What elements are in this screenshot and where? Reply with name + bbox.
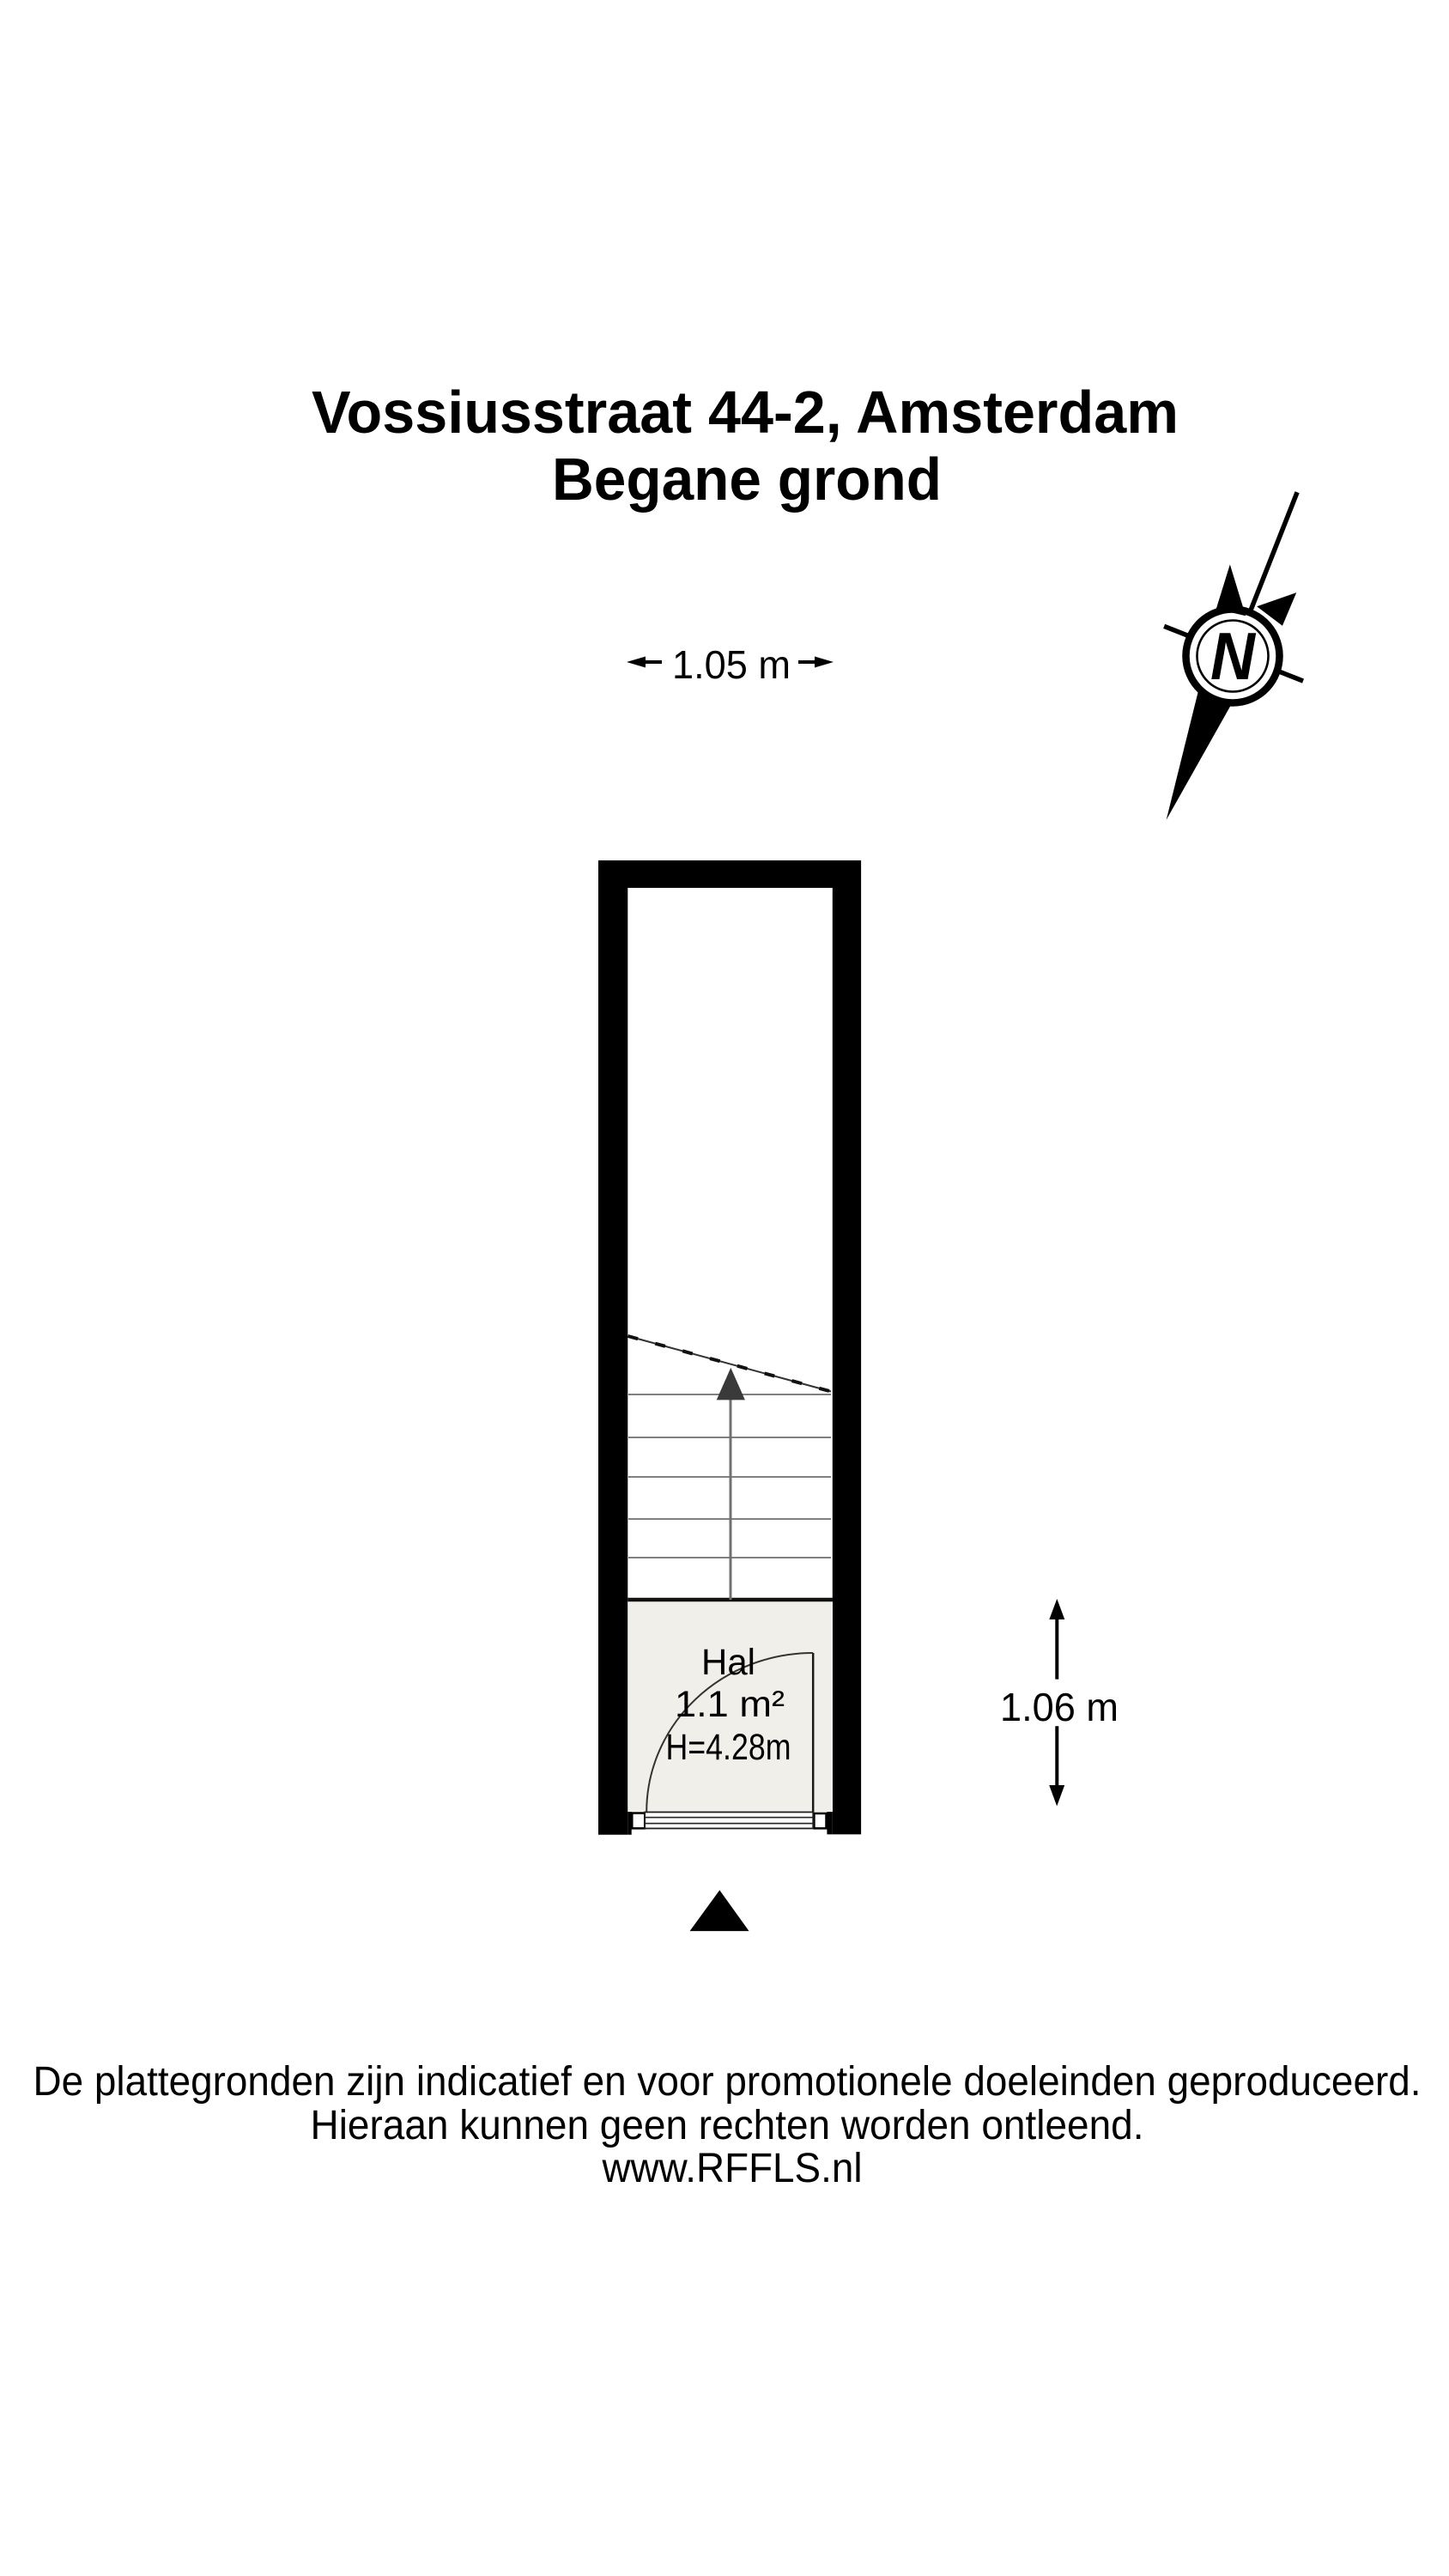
svg-text:De plattegronden zijn indicati: De plattegronden zijn indicatief en voor…: [33, 2059, 1422, 2105]
svg-text:Hieraan kunnen geen rechten wo: Hieraan kunnen geen rechten worden ontle…: [311, 2103, 1144, 2148]
svg-text:H=4.28m: H=4.28m: [666, 1727, 791, 1768]
svg-text:1.06 m: 1.06 m: [1000, 1685, 1119, 1729]
svg-text:1.05 m: 1.05 m: [672, 642, 791, 687]
svg-text:Hal: Hal: [701, 1642, 755, 1683]
svg-text:1.1 m²: 1.1 m²: [675, 1684, 785, 1725]
svg-text:www.RFFLS.nl: www.RFFLS.nl: [602, 2146, 863, 2191]
svg-text:N: N: [1210, 618, 1257, 694]
svg-text:Begane grond: Begane grond: [552, 446, 942, 513]
svg-text:Vossiusstraat 44-2, Amsterdam: Vossiusstraat 44-2, Amsterdam: [312, 379, 1179, 446]
